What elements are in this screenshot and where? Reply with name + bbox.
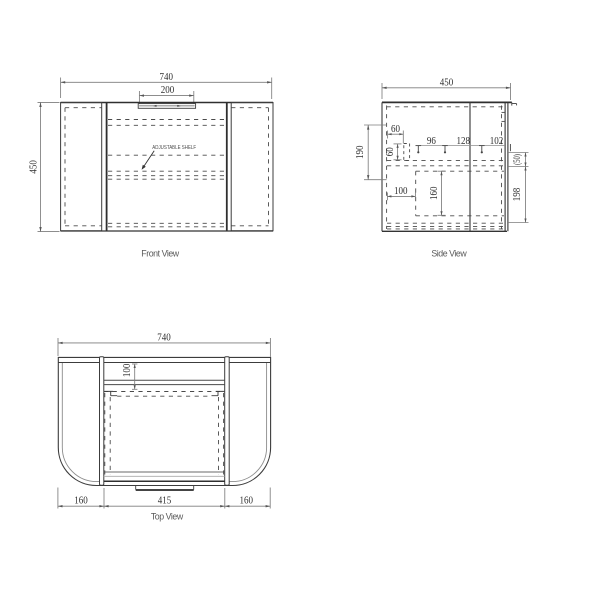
svg-text:198: 198 <box>512 188 523 202</box>
svg-text:Front View: Front View <box>141 249 179 259</box>
svg-text:Top View: Top View <box>151 512 184 522</box>
svg-text:102: 102 <box>490 136 504 147</box>
svg-text:190: 190 <box>355 146 366 160</box>
svg-text:450: 450 <box>440 77 454 88</box>
svg-text:Side View: Side View <box>431 248 467 258</box>
svg-text:200: 200 <box>161 85 175 96</box>
svg-text:740: 740 <box>157 333 171 344</box>
svg-text:(50): (50) <box>512 154 523 165</box>
svg-text:100: 100 <box>122 364 133 378</box>
svg-text:160: 160 <box>240 495 254 506</box>
svg-text:450: 450 <box>29 160 40 174</box>
svg-text:160: 160 <box>429 187 440 201</box>
svg-text:96: 96 <box>427 136 436 147</box>
svg-text:740: 740 <box>160 72 174 83</box>
svg-text:415: 415 <box>158 495 172 506</box>
svg-text:ADJUSTABLE SHELF: ADJUSTABLE SHELF <box>152 145 196 151</box>
svg-text:160: 160 <box>74 495 88 506</box>
svg-text:128: 128 <box>456 136 470 147</box>
svg-text:60: 60 <box>391 124 400 135</box>
svg-text:100: 100 <box>394 186 408 197</box>
svg-text:60: 60 <box>385 147 396 156</box>
